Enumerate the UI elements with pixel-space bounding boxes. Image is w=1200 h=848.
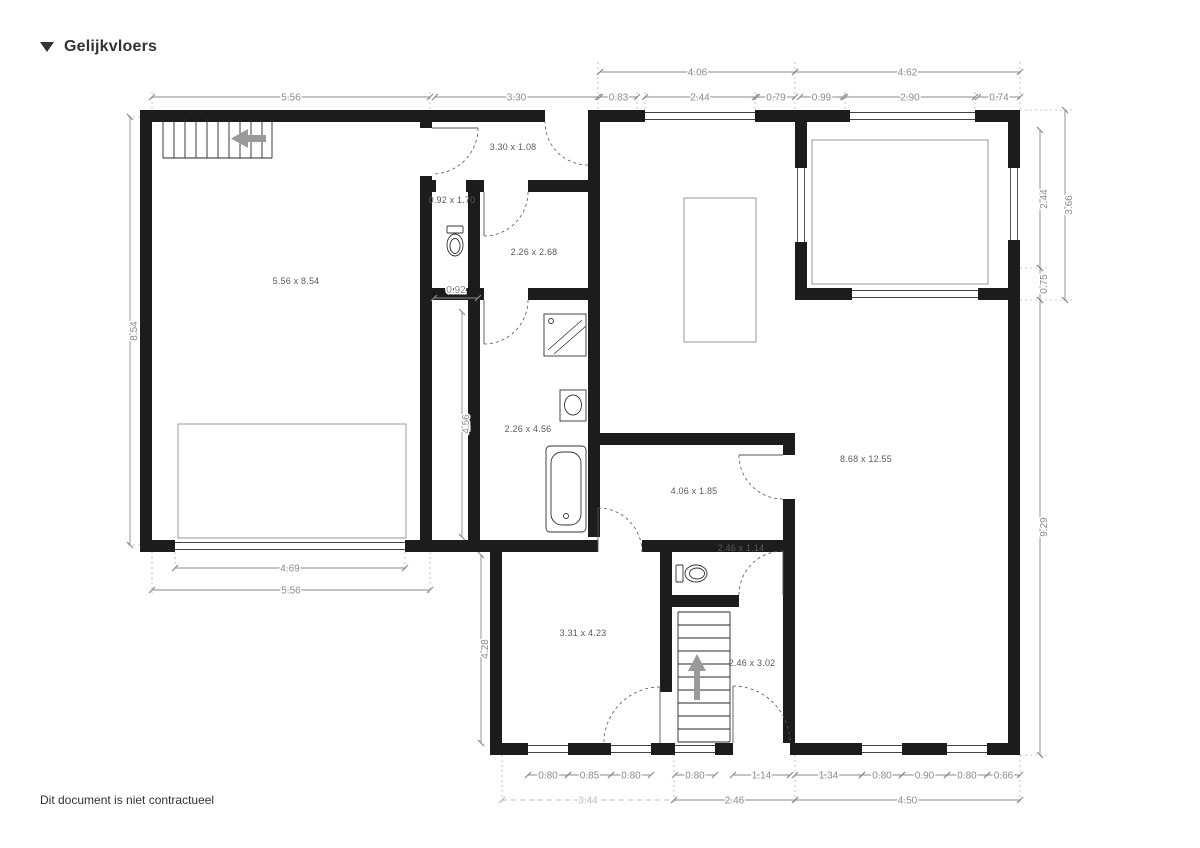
window-b5 [947, 746, 987, 753]
room-size-label: 0.92 x 1.70 [429, 195, 476, 205]
dimension-label: 8.54 [129, 321, 140, 341]
dimension-label: 0.74 [989, 93, 1009, 104]
dimension-label: 3.30 [507, 93, 527, 104]
stairs-garage [163, 118, 272, 158]
kitchen-island [684, 198, 756, 342]
terrace-rail-bottom [852, 291, 978, 298]
dimension-label: 0.79 [766, 93, 786, 104]
dimension-label: 0.99 [812, 93, 832, 104]
room-size-label: 2.26 x 2.68 [511, 247, 558, 257]
terrace-deck [812, 140, 988, 284]
garage-door [175, 543, 405, 550]
dimension-label: 2.44 [1039, 189, 1050, 209]
garage-parking-outline [178, 424, 406, 538]
dimension-label: 3.66 [1064, 195, 1075, 215]
terrace-rail-right [1011, 168, 1018, 240]
dimension-label: 5.56 [281, 93, 301, 104]
walls [140, 110, 1020, 755]
dimension-label: 0.80 [621, 771, 641, 782]
room-size-label: 8.68 x 12.55 [840, 454, 892, 464]
room-size-label: 4.06 x 1.85 [671, 486, 718, 496]
room-size-label: 2.46 x 3.02 [729, 658, 776, 668]
window-top [645, 110, 755, 122]
dimension-label: 4.62 [898, 68, 918, 79]
room-size-label: 5.56 x 8.54 [273, 276, 320, 286]
dimension-label: 4.56 [461, 414, 472, 434]
stairs-main [678, 612, 730, 742]
toilet-wc [676, 565, 707, 582]
terrace-sliding-door [798, 168, 805, 242]
dimension-label: 0.90 [915, 771, 935, 782]
stairs-direction-arrow [231, 129, 266, 148]
bathtub [546, 446, 586, 532]
dimension-label: 2.90 [900, 93, 920, 104]
toilet-nook [447, 226, 463, 256]
window-b1 [528, 746, 568, 753]
dimension-label: 1.34 [819, 771, 839, 782]
room-size-label: 3.31 x 4.23 [560, 628, 607, 638]
dimension-label: 3.44 [578, 796, 598, 807]
window-b2 [611, 746, 651, 753]
dimension-label: 9.29 [1039, 517, 1050, 537]
dimension-label: 4.69 [280, 564, 300, 575]
dimension-label: 0.80 [538, 771, 558, 782]
room-size-label: 2.46 x 1.14 [718, 543, 765, 553]
dimension-label: 0.85 [580, 771, 600, 782]
floorplan-svg: 4.06 4.62 5.56 3.30 0.83 2.44 0.79 0.99 … [0, 0, 1200, 848]
fixtures [163, 118, 988, 742]
window-b4 [862, 746, 902, 753]
dimension-label: 0.75 [1039, 274, 1050, 294]
window-b3 [675, 746, 715, 753]
dimension-label: 0.66 [994, 771, 1014, 782]
disclaimer-text: Dit document is niet contractueel [40, 793, 214, 807]
room-size-label: 3.30 x 1.08 [490, 142, 537, 152]
dimension-label: 4.06 [688, 68, 708, 79]
dimension-label: 0.80 [872, 771, 892, 782]
dimension-label: 0.92 [446, 285, 466, 296]
dimension-label: 0.80 [957, 771, 977, 782]
dimension-label: 5.56 [281, 586, 301, 597]
dimension-label: 2.44 [690, 93, 710, 104]
dimension-label: 0.83 [609, 93, 629, 104]
dimension-label: 2.46 [725, 796, 745, 807]
sink [560, 390, 586, 421]
dimension-label: 1.14 [752, 771, 772, 782]
dimension-label: 4.50 [898, 796, 918, 807]
dimension-label: 0.80 [685, 771, 705, 782]
shower [544, 314, 586, 356]
terrace-rail-top [850, 113, 975, 120]
dimension-label: 4.28 [480, 639, 491, 659]
room-size-label: 2.26 x 4.56 [505, 424, 552, 434]
